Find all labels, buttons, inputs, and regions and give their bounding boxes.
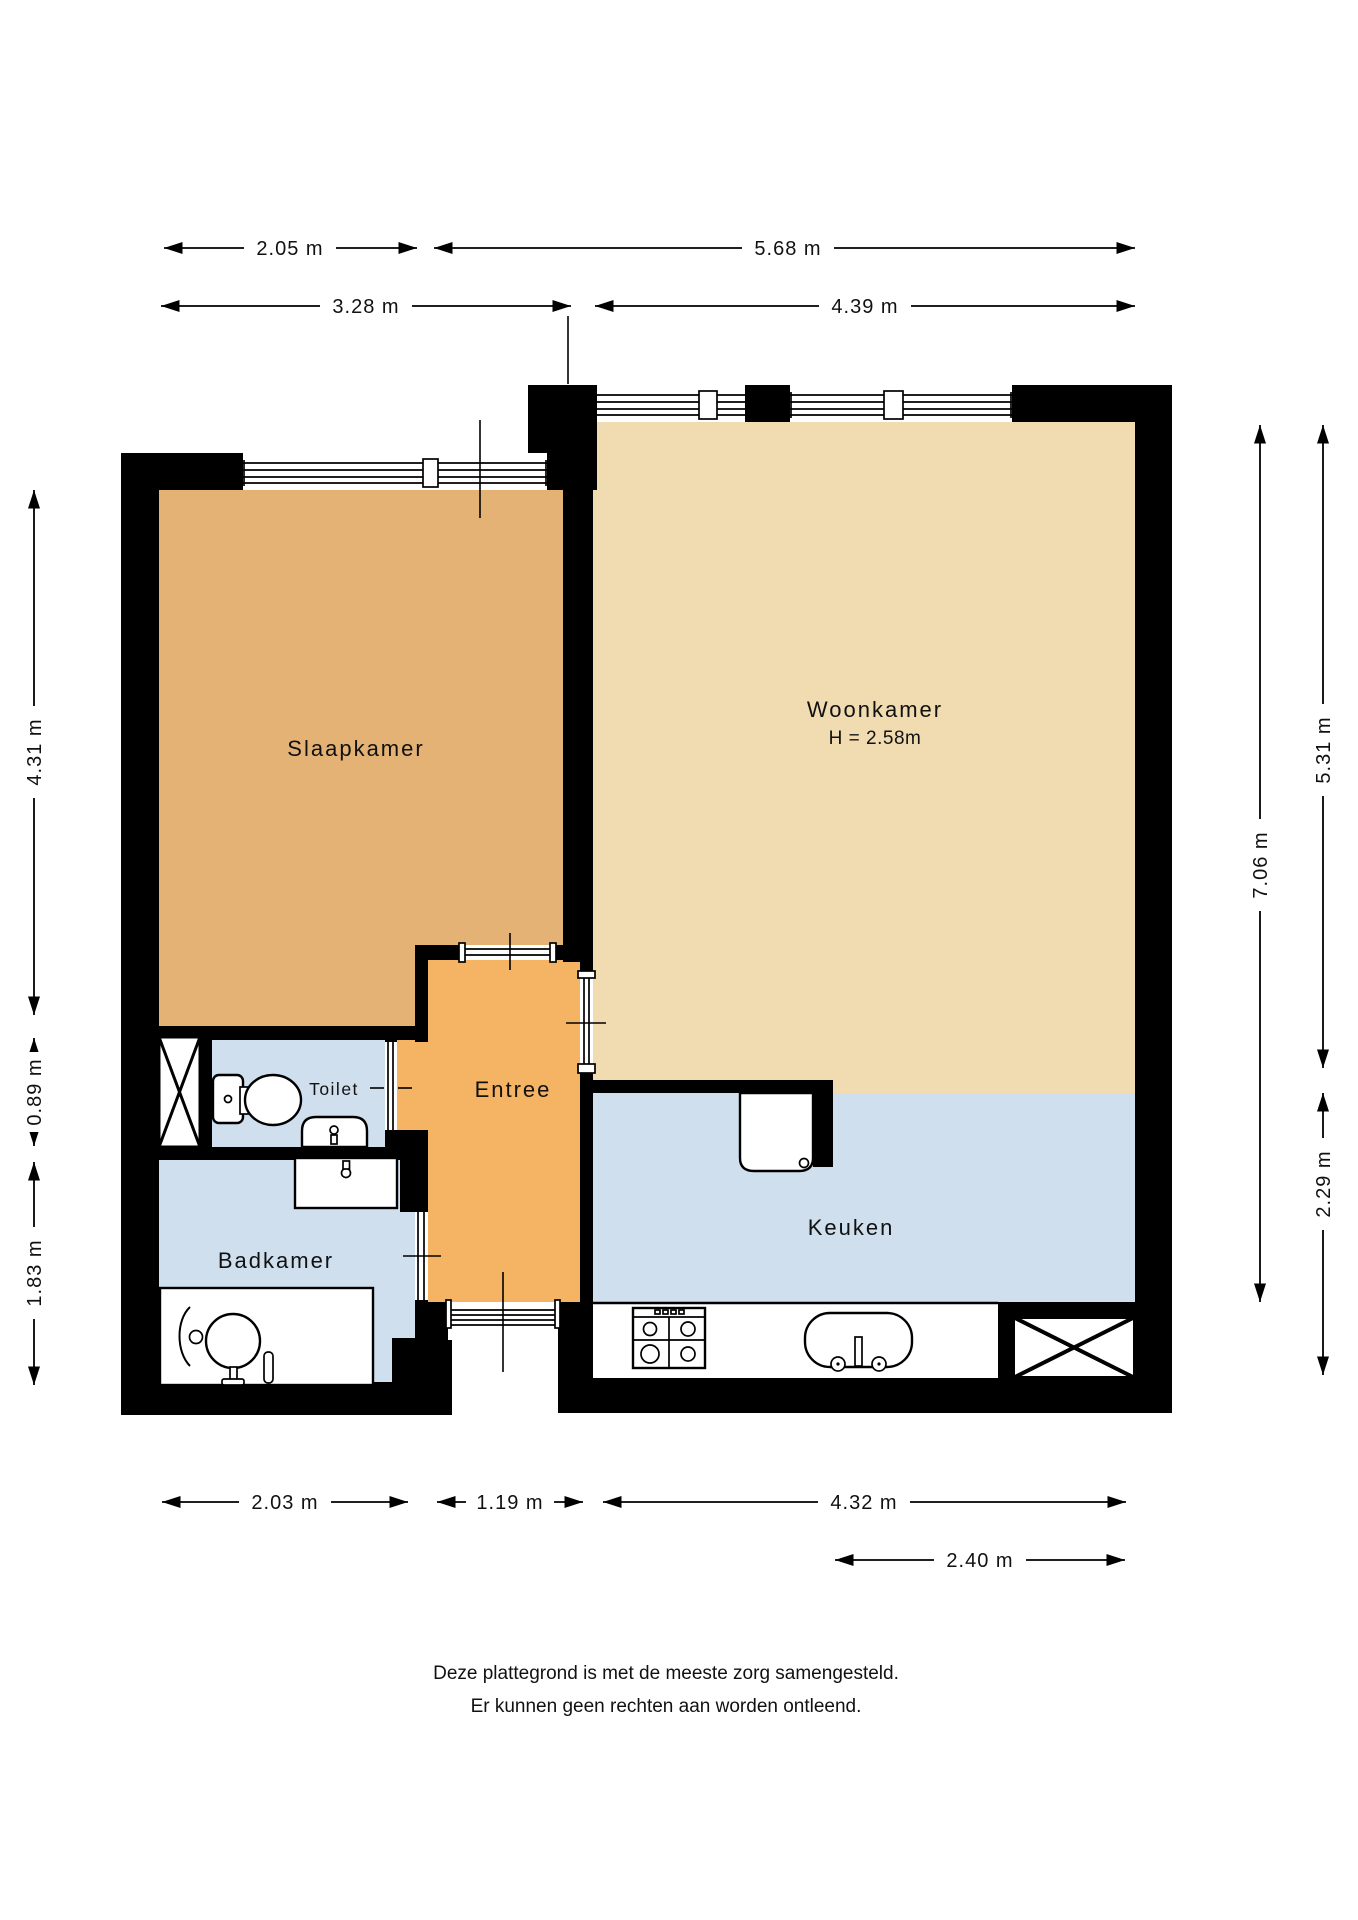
shaft-cross-icon	[159, 1037, 200, 1147]
wall-segment	[563, 422, 593, 962]
dimension-top-2b: 4.39 m	[595, 293, 1135, 319]
dimension-label: 4.32 m	[830, 1492, 897, 1514]
dimension-label: 4.39 m	[831, 296, 898, 318]
room-label-woonkamer: Woonkamer	[807, 697, 943, 722]
dimension-label: 7.06 m	[1250, 831, 1272, 898]
room-label-badkamer: Badkamer	[218, 1248, 334, 1273]
wall-segment	[121, 1382, 452, 1415]
entree-floor-nook	[397, 1040, 428, 1132]
window	[790, 385, 1012, 422]
room-floors	[159, 422, 1135, 1385]
room-label-keuken: Keuken	[808, 1215, 895, 1240]
room-label-slaapkamer: Slaapkamer	[287, 736, 424, 761]
gas-hob-icon	[633, 1308, 705, 1368]
dimension-label: 5.31 m	[1313, 716, 1335, 783]
dimension-label: 1.19 m	[476, 1492, 543, 1514]
wall-segment	[1135, 385, 1172, 1413]
hand-basin-icon	[302, 1117, 367, 1147]
floorplan-canvas: 2.05 m 5.68 m 3.28 m 4.39 m 2.03 m 1.19	[0, 0, 1358, 1920]
dimension-bottom-2: 2.40 m	[835, 1547, 1125, 1573]
dimension-top-2a: 3.28 m	[161, 293, 571, 319]
dimension-label: 0.89 m	[24, 1058, 46, 1125]
wall-segment	[592, 1080, 833, 1093]
wall-segment	[558, 1302, 593, 1382]
dimension-bottom-1c: 4.32 m	[603, 1489, 1126, 1515]
window	[243, 453, 547, 490]
dimension-left-2: 0.89 m	[21, 1038, 47, 1146]
window	[597, 385, 745, 422]
dimension-bottom-1a: 2.03 m	[162, 1489, 408, 1515]
boiler-icon	[740, 1093, 813, 1171]
dimension-right-3: 2.29 m	[1310, 1093, 1336, 1375]
wall-segment	[397, 1130, 428, 1147]
dimension-label: 2.40 m	[946, 1550, 1013, 1572]
room-label-entree: Entree	[475, 1077, 552, 1102]
disclaimer-line-1: Deze plattegrond is met de meeste zorg s…	[433, 1663, 899, 1684]
wall-segment	[200, 1038, 212, 1147]
dimension-top-1a: 2.05 m	[164, 235, 417, 261]
dimension-top-1b: 5.68 m	[434, 235, 1135, 261]
room-label-toilet: Toilet	[309, 1079, 359, 1099]
wall-segment	[813, 1083, 833, 1167]
wall-segment	[121, 453, 159, 1415]
wall-segment	[998, 1302, 1012, 1378]
door-slaapkamer	[459, 943, 556, 962]
shaft-cross-icon	[1013, 1317, 1135, 1378]
entree-floor	[428, 960, 580, 1302]
door-toilet	[385, 1042, 397, 1130]
dimension-label: 3.28 m	[332, 296, 399, 318]
toilet-icon	[213, 1075, 301, 1125]
dimension-label: 2.29 m	[1313, 1150, 1335, 1217]
dimension-label: 2.05 m	[256, 238, 323, 260]
dimension-label: 4.31 m	[24, 718, 46, 785]
dimension-bottom-1b: 1.19 m	[437, 1489, 583, 1515]
dimension-right-1: 7.06 m	[1247, 425, 1273, 1302]
dimension-right-2: 5.31 m	[1310, 425, 1336, 1068]
room-height-note: H = 2.58m	[829, 728, 922, 749]
washbasin-icon	[295, 1158, 397, 1208]
disclaimer: Deze plattegrond is met de meeste zorg s…	[433, 1663, 899, 1717]
wall-segment	[998, 1302, 1135, 1317]
wall-segment	[400, 1147, 428, 1212]
door-woonkamer	[578, 971, 595, 1073]
wall-segment	[558, 1378, 1172, 1413]
dimension-left-3: 1.83 m	[21, 1162, 47, 1385]
floorplan-page: 2.05 m 5.68 m 3.28 m 4.39 m 2.03 m 1.19	[0, 0, 1358, 1920]
kitchen-sink-icon	[805, 1313, 912, 1371]
dimension-left-1: 4.31 m	[21, 490, 47, 1015]
disclaimer-line-2: Er kunnen geen rechten aan worden ontlee…	[471, 1696, 862, 1717]
dimension-label: 1.83 m	[24, 1239, 46, 1306]
dimension-label: 5.68 m	[754, 238, 821, 260]
dimension-label: 2.03 m	[251, 1492, 318, 1514]
bath-counter	[160, 1288, 373, 1385]
woonkamer-floor	[593, 422, 1135, 1093]
wall-segment	[415, 958, 428, 1042]
